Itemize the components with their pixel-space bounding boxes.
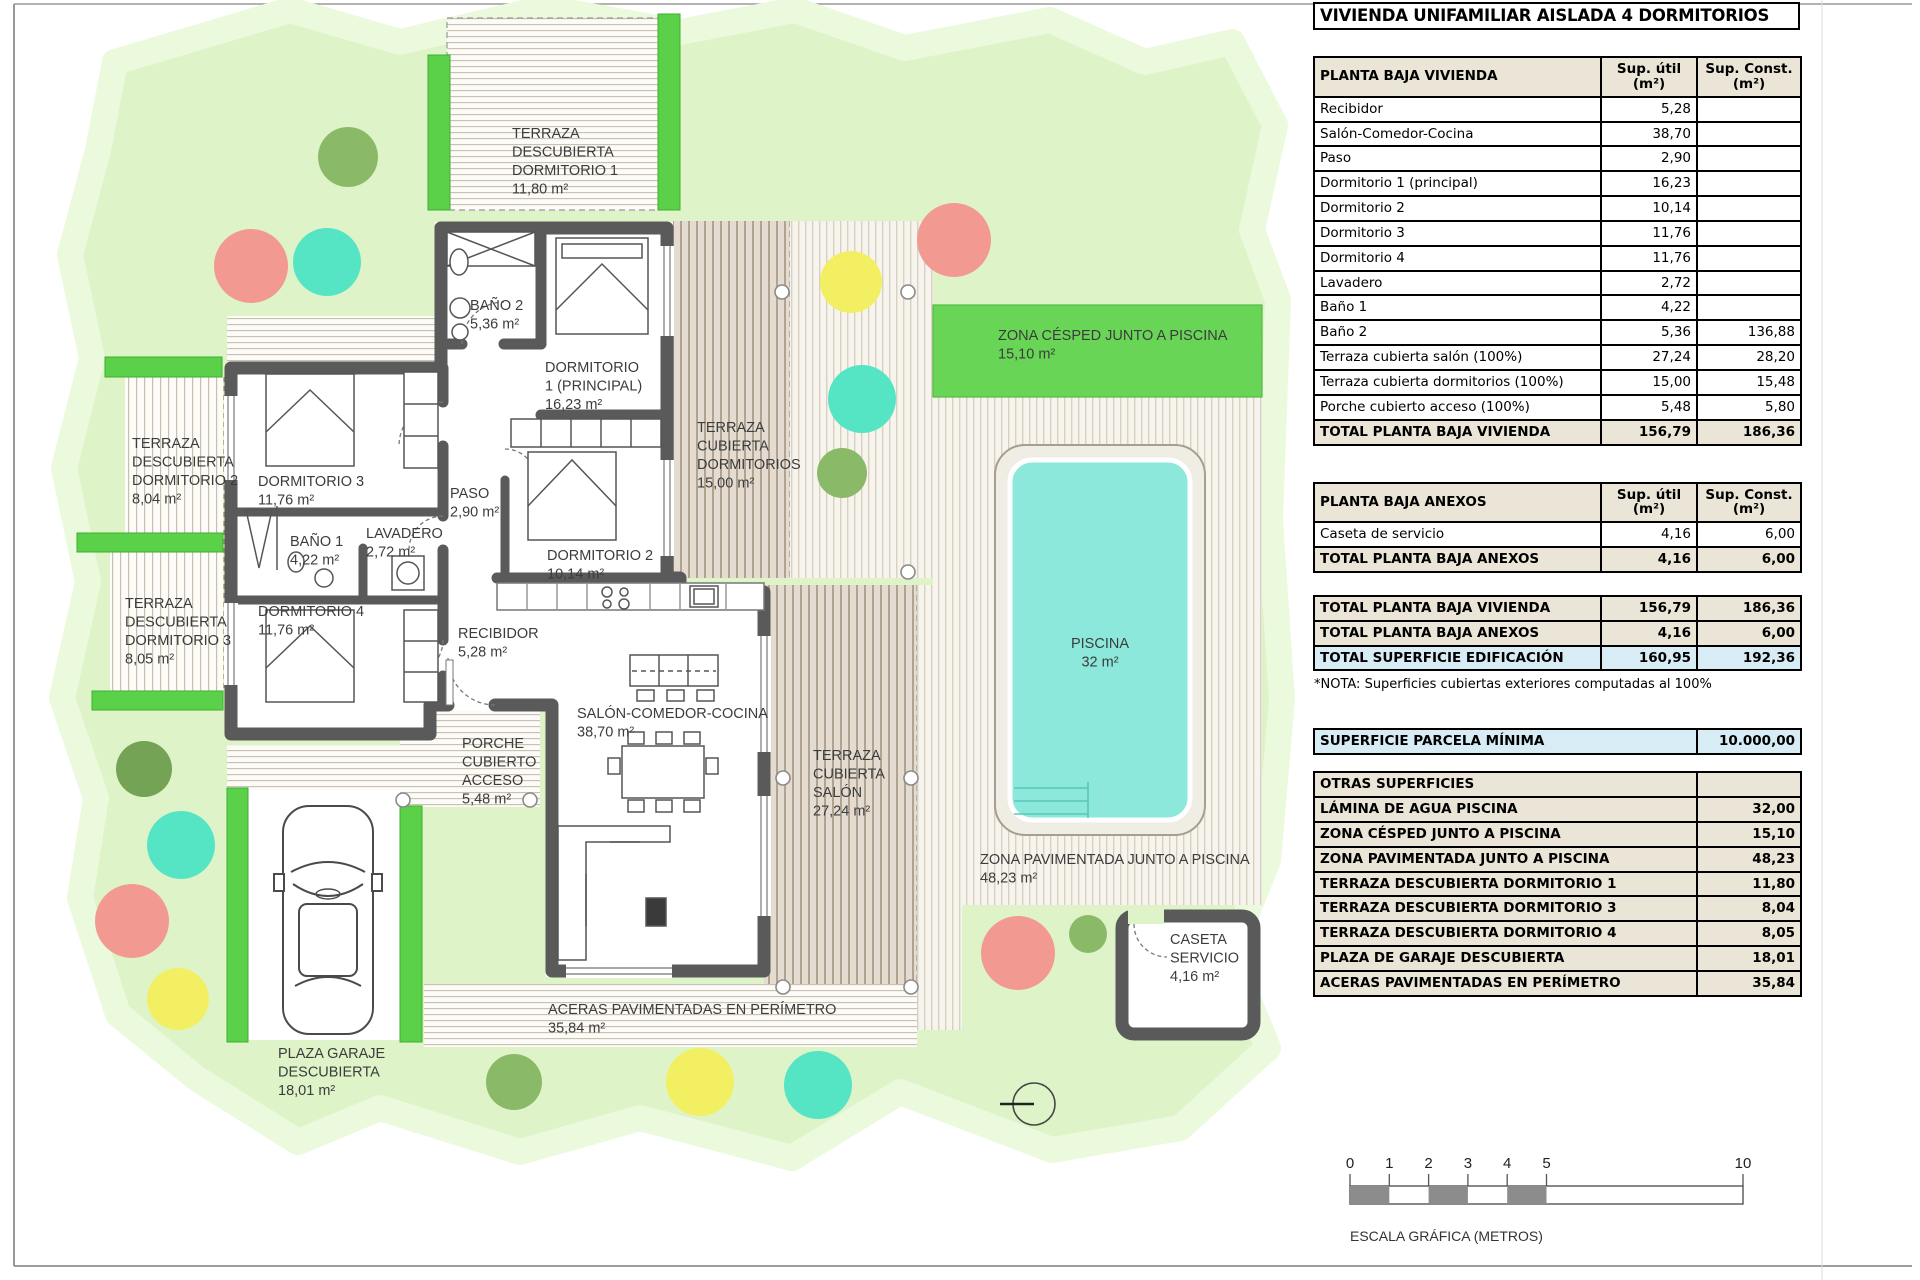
summary-sup-util: 160,95 xyxy=(1601,646,1697,671)
row-sup-util: 2,72 xyxy=(1601,271,1697,296)
car xyxy=(274,806,382,1034)
row-sup-util: 16,23 xyxy=(1601,171,1697,196)
table-row: PLAZA DE GARAJE DESCUBIERTA18,01 xyxy=(1314,946,1801,971)
row-sup-util: 5,36 xyxy=(1601,320,1697,345)
row-label: ZONA CÉSPED JUNTO A PISCINA xyxy=(1314,822,1697,847)
scale-ticks: 01234510 xyxy=(1346,1155,1752,1186)
row-sup-const xyxy=(1697,146,1801,171)
row-sup-util: 11,76 xyxy=(1601,246,1697,271)
row-value: 48,23 xyxy=(1697,847,1801,872)
table-row: Paso2,90 xyxy=(1314,146,1801,171)
row-value: 35,84 xyxy=(1697,971,1801,996)
row-sup-util: 5,48 xyxy=(1601,395,1697,420)
row-sup-const xyxy=(1697,295,1801,320)
row-label: Dormitorio 3 xyxy=(1314,221,1601,246)
row-label: Terraza cubierta dormitorios (100%) xyxy=(1314,370,1601,395)
table-row: ACERAS PAVIMENTADAS EN PERÍMETRO35,84 xyxy=(1314,971,1801,996)
row-label: TERRAZA DESCUBIERTA DORMITORIO 1 xyxy=(1314,872,1697,897)
summary-sup-util: 4,16 xyxy=(1601,621,1697,646)
table-header-row: OTRAS SUPERFICIES xyxy=(1314,772,1801,797)
total-sup-const: 6,00 xyxy=(1697,547,1801,572)
row-sup-const: 6,00 xyxy=(1697,522,1801,547)
row-value: 8,04 xyxy=(1697,896,1801,921)
table-row: Terraza cubierta salón (100%)27,2428,20 xyxy=(1314,345,1801,370)
note-text: *NOTA: Superficies cubiertas exteriores … xyxy=(1313,671,1800,698)
row-label: Caseta de servicio xyxy=(1314,522,1601,547)
row-sup-const xyxy=(1697,271,1801,296)
table-row: TERRAZA DESCUBIERTA DORMITORIO 38,04 xyxy=(1314,896,1801,921)
row-sup-util: 27,24 xyxy=(1601,345,1697,370)
row-value: 32,00 xyxy=(1697,797,1801,822)
row-sup-const xyxy=(1697,221,1801,246)
row-sup-const xyxy=(1697,97,1801,122)
row-label: Dormitorio 2 xyxy=(1314,196,1601,221)
row-label: ACERAS PAVIMENTADAS EN PERÍMETRO xyxy=(1314,971,1697,996)
summary-label: TOTAL PLANTA BAJA VIVIENDA xyxy=(1314,596,1601,621)
table-row: Caseta de servicio4,166,00 xyxy=(1314,522,1801,547)
row-label: Baño 1 xyxy=(1314,295,1601,320)
summary-sup-util: 156,79 xyxy=(1601,596,1697,621)
totals-table: TOTAL PLANTA BAJA VIVIENDA156,79186,36TO… xyxy=(1313,595,1802,672)
scale-tick-label: 3 xyxy=(1464,1155,1472,1172)
row-label: Dormitorio 4 xyxy=(1314,246,1601,271)
row-label: Lavadero xyxy=(1314,271,1601,296)
section-header: PLANTA BAJA VIVIENDA xyxy=(1314,57,1601,97)
total-sup-util: 4,16 xyxy=(1601,547,1697,572)
row-label: TERRAZA DESCUBIERTA DORMITORIO 3 xyxy=(1314,896,1697,921)
table-row: Dormitorio 210,14 xyxy=(1314,196,1801,221)
table-row: LÁMINA DE AGUA PISCINA32,00 xyxy=(1314,797,1801,822)
total-label: TOTAL PLANTA BAJA ANEXOS xyxy=(1314,547,1601,572)
row-label: Salón-Comedor-Cocina xyxy=(1314,122,1601,147)
summary-sup-const: 192,36 xyxy=(1697,646,1801,671)
row-value: 8,05 xyxy=(1697,921,1801,946)
col-sup-const: Sup. Const.(m²) xyxy=(1697,57,1801,97)
table-row: Baño 14,22 xyxy=(1314,295,1801,320)
row-value: 15,10 xyxy=(1697,822,1801,847)
scale-tick-label: 0 xyxy=(1346,1155,1354,1172)
row-sup-const xyxy=(1697,196,1801,221)
row-label: Dormitorio 1 (principal) xyxy=(1314,171,1601,196)
row-value: 11,80 xyxy=(1697,872,1801,897)
row-sup-util: 11,76 xyxy=(1601,221,1697,246)
row-sup-const: 5,80 xyxy=(1697,395,1801,420)
site-plan-sheet: TERRAZADESCUBIERTADORMITORIO 111,80 m²TE… xyxy=(0,0,1920,1280)
row-sup-const xyxy=(1697,122,1801,147)
table-row: SUPERFICIE PARCELA MÍNIMA 10.000,00 xyxy=(1314,729,1801,754)
row-sup-util: 38,70 xyxy=(1601,122,1697,147)
row-sup-const: 136,88 xyxy=(1697,320,1801,345)
row-label: Terraza cubierta salón (100%) xyxy=(1314,345,1601,370)
row-label: Baño 2 xyxy=(1314,320,1601,345)
section-header: PLANTA BAJA ANEXOS xyxy=(1314,483,1601,523)
graphic-scale: 01234510 ESCALA GRÁFICA (METROS) xyxy=(1310,1146,1830,1266)
table-row: Terraza cubierta dormitorios (100%)15,00… xyxy=(1314,370,1801,395)
row-label: PLAZA DE GARAJE DESCUBIERTA xyxy=(1314,946,1697,971)
total-label: TOTAL PLANTA BAJA VIVIENDA xyxy=(1314,420,1601,445)
table-row: TERRAZA DESCUBIERTA DORMITORIO 111,80 xyxy=(1314,872,1801,897)
table-row: Recibidor5,28 xyxy=(1314,97,1801,122)
table-row: ZONA PAVIMENTADA JUNTO A PISCINA48,23 xyxy=(1314,847,1801,872)
row-label: Porche cubierto acceso (100%) xyxy=(1314,395,1601,420)
empty-cell xyxy=(1697,772,1801,797)
summary-row: TOTAL SUPERFICIE EDIFICACIÓN160,95192,36 xyxy=(1314,646,1801,671)
col-sup-util: Sup. útil(m²) xyxy=(1601,483,1697,523)
table-row: Dormitorio 1 (principal)16,23 xyxy=(1314,171,1801,196)
summary-row: TOTAL PLANTA BAJA VIVIENDA156,79186,36 xyxy=(1314,596,1801,621)
page-title: VIVIENDA UNIFAMILIAR AISLADA 4 DORMITORI… xyxy=(1313,2,1800,30)
table-row: Salón-Comedor-Cocina38,70 xyxy=(1314,122,1801,147)
table-row: Dormitorio 311,76 xyxy=(1314,221,1801,246)
row-value: 10.000,00 xyxy=(1697,729,1801,754)
row-sup-util: 4,22 xyxy=(1601,295,1697,320)
table-row: Baño 25,36136,88 xyxy=(1314,320,1801,345)
row-sup-util: 5,28 xyxy=(1601,97,1697,122)
row-label: SUPERFICIE PARCELA MÍNIMA xyxy=(1314,729,1697,754)
summary-row: TOTAL PLANTA BAJA ANEXOS4,166,00 xyxy=(1314,621,1801,646)
row-sup-const: 15,48 xyxy=(1697,370,1801,395)
row-sup-util: 4,16 xyxy=(1601,522,1697,547)
row-label: ZONA PAVIMENTADA JUNTO A PISCINA xyxy=(1314,847,1697,872)
summary-label: TOTAL SUPERFICIE EDIFICACIÓN xyxy=(1314,646,1601,671)
row-sup-util: 15,00 xyxy=(1601,370,1697,395)
otras-superficies-table: OTRAS SUPERFICIES LÁMINA DE AGUA PISCINA… xyxy=(1313,771,1802,997)
surface-summary-panel: VIVIENDA UNIFAMILIAR AISLADA 4 DORMITORI… xyxy=(1313,2,1800,997)
col-sup-const: Sup. Const.(m²) xyxy=(1697,483,1801,523)
summary-label: TOTAL PLANTA BAJA ANEXOS xyxy=(1314,621,1601,646)
scale-tick-label: 1 xyxy=(1385,1155,1393,1172)
table-row: Porche cubierto acceso (100%)5,485,80 xyxy=(1314,395,1801,420)
row-value: 18,01 xyxy=(1697,946,1801,971)
scale-tick-label: 5 xyxy=(1542,1155,1550,1172)
scale-label: ESCALA GRÁFICA (METROS) xyxy=(1350,1228,1543,1244)
planta-baja-vivienda-table: PLANTA BAJA VIVIENDA Sup. útil(m²) Sup. … xyxy=(1313,56,1802,446)
parcela-minima-table: SUPERFICIE PARCELA MÍNIMA 10.000,00 xyxy=(1313,728,1802,755)
entrance-door-leaf xyxy=(446,660,453,705)
table-row: Lavadero2,72 xyxy=(1314,271,1801,296)
total-row: TOTAL PLANTA BAJA ANEXOS4,166,00 xyxy=(1314,547,1801,572)
scale-tick-label: 10 xyxy=(1735,1155,1752,1172)
total-sup-util: 156,79 xyxy=(1601,420,1697,445)
row-sup-const xyxy=(1697,246,1801,271)
row-sup-util: 2,90 xyxy=(1601,146,1697,171)
row-label: TERRAZA DESCUBIERTA DORMITORIO 4 xyxy=(1314,921,1697,946)
table-header-row: PLANTA BAJA VIVIENDA Sup. útil(m²) Sup. … xyxy=(1314,57,1801,97)
total-row: TOTAL PLANTA BAJA VIVIENDA156,79186,36 xyxy=(1314,420,1801,445)
row-sup-const xyxy=(1697,171,1801,196)
col-sup-util: Sup. útil(m²) xyxy=(1601,57,1697,97)
scale-tick-label: 2 xyxy=(1424,1155,1432,1172)
row-label: Recibidor xyxy=(1314,97,1601,122)
total-sup-const: 186,36 xyxy=(1697,420,1801,445)
scale-tick-label: 4 xyxy=(1503,1155,1511,1172)
row-label: Paso xyxy=(1314,146,1601,171)
row-sup-util: 10,14 xyxy=(1601,196,1697,221)
planta-baja-anexos-table: PLANTA BAJA ANEXOS Sup. útil(m²) Sup. Co… xyxy=(1313,482,1802,573)
row-sup-const: 28,20 xyxy=(1697,345,1801,370)
table-header-row: PLANTA BAJA ANEXOS Sup. útil(m²) Sup. Co… xyxy=(1314,483,1801,523)
table-row: TERRAZA DESCUBIERTA DORMITORIO 48,05 xyxy=(1314,921,1801,946)
row-label: LÁMINA DE AGUA PISCINA xyxy=(1314,797,1697,822)
table-row: ZONA CÉSPED JUNTO A PISCINA15,10 xyxy=(1314,822,1801,847)
table-row: Dormitorio 411,76 xyxy=(1314,246,1801,271)
summary-sup-const: 6,00 xyxy=(1697,621,1801,646)
section-header: OTRAS SUPERFICIES xyxy=(1314,772,1697,797)
summary-sup-const: 186,36 xyxy=(1697,596,1801,621)
